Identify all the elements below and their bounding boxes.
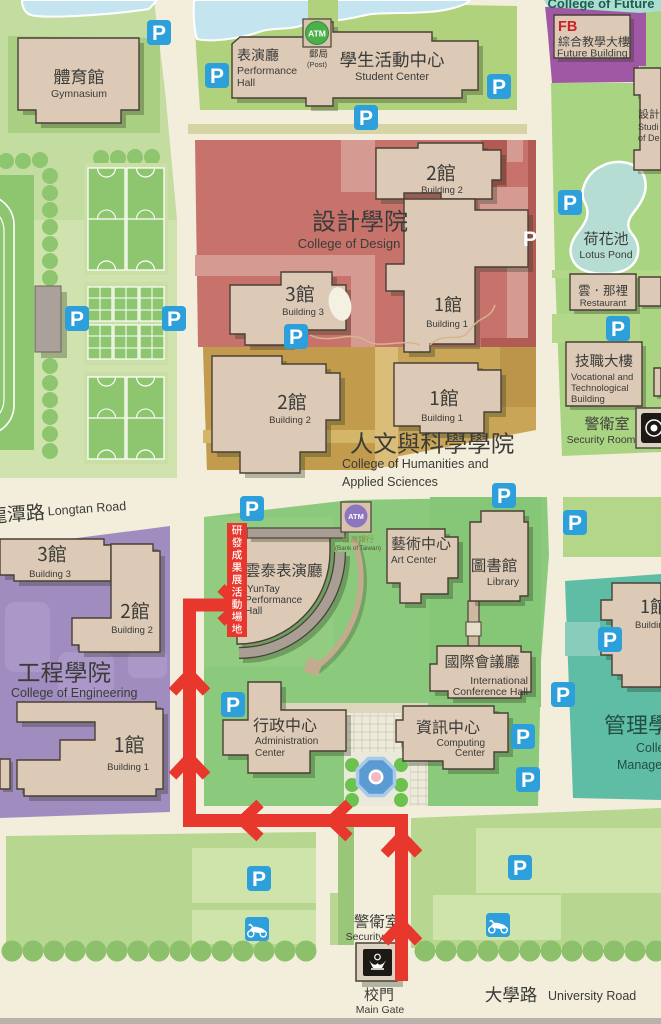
svg-text:Library: Library — [487, 576, 520, 588]
svg-text:P: P — [245, 498, 259, 521]
svg-text:Building 1: Building 1 — [107, 762, 149, 773]
svg-text:ATM: ATM — [308, 29, 326, 39]
svg-text:P: P — [167, 308, 181, 331]
svg-text:P: P — [210, 65, 224, 88]
svg-text:University Road: University Road — [548, 989, 636, 1003]
svg-text:Restaurant: Restaurant — [580, 298, 627, 309]
svg-text:P: P — [513, 857, 527, 880]
svg-text:College of Humanities and: College of Humanities and — [342, 457, 489, 471]
svg-text:Art Center: Art Center — [391, 555, 437, 566]
svg-text:Conference Hall: Conference Hall — [453, 686, 528, 698]
svg-text:Center: Center — [255, 748, 286, 759]
svg-text:FB: FB — [558, 19, 577, 35]
svg-text:Hall: Hall — [237, 77, 255, 89]
svg-text:Management: Management — [617, 758, 661, 772]
svg-text:College of Engineering: College of Engineering — [11, 686, 138, 700]
svg-text:Building 1: Building 1 — [635, 620, 661, 631]
svg-text:Performance: Performance — [237, 65, 297, 77]
svg-text:Building: Building — [571, 394, 605, 405]
svg-text:P: P — [556, 684, 570, 707]
svg-text:YunTay: YunTay — [247, 584, 280, 595]
svg-text:ATM: ATM — [348, 512, 364, 521]
svg-text:Building 2: Building 2 — [111, 625, 153, 636]
svg-text:College of Future: College of Future — [548, 0, 655, 11]
svg-text:Center: Center — [455, 748, 486, 759]
svg-text:(Post): (Post) — [307, 60, 328, 69]
svg-text:P: P — [568, 512, 582, 535]
svg-text:College of: College of — [636, 741, 661, 755]
svg-text:P: P — [252, 868, 266, 891]
svg-text:Building 3: Building 3 — [29, 569, 71, 580]
svg-text:College of Design: College of Design — [298, 236, 401, 251]
svg-text:Vocational and: Vocational and — [571, 372, 633, 383]
svg-text:of De: of De — [638, 133, 660, 143]
svg-text:P: P — [516, 726, 530, 749]
svg-text:P: P — [226, 694, 240, 717]
svg-text:Studi: Studi — [638, 122, 659, 132]
svg-text:Performance: Performance — [245, 595, 303, 606]
svg-text:P: P — [359, 107, 373, 130]
svg-text:P: P — [497, 485, 511, 508]
svg-text:Administration: Administration — [255, 736, 318, 747]
svg-text:Building 2: Building 2 — [269, 415, 311, 426]
svg-text:Main Gate: Main Gate — [356, 1004, 405, 1016]
svg-text:Building 3: Building 3 — [282, 307, 324, 318]
svg-text:P: P — [563, 192, 577, 215]
svg-text:Hall: Hall — [245, 606, 262, 617]
svg-text:P: P — [521, 769, 535, 792]
svg-text:P: P — [611, 318, 625, 341]
svg-text:Student Center: Student Center — [355, 71, 429, 83]
svg-text:P: P — [492, 76, 506, 99]
svg-text:Building 1: Building 1 — [421, 413, 463, 424]
svg-text:P: P — [523, 228, 537, 251]
svg-text:P: P — [289, 326, 303, 349]
svg-text:Future Building: Future Building — [557, 48, 628, 60]
svg-text:Building 2: Building 2 — [421, 185, 463, 196]
svg-text:Security Room: Security Room — [567, 434, 636, 446]
svg-text:(Bank of Taiwan): (Bank of Taiwan) — [335, 545, 381, 552]
svg-text:P: P — [70, 308, 84, 331]
svg-text:Technological: Technological — [571, 383, 629, 394]
svg-text:Building 1: Building 1 — [426, 319, 468, 330]
svg-text:Gymnasium: Gymnasium — [51, 88, 107, 100]
svg-text:P: P — [603, 629, 617, 652]
svg-text:P: P — [152, 22, 166, 45]
svg-text:Lotus Pond: Lotus Pond — [579, 249, 632, 261]
svg-text:Applied Sciences: Applied Sciences — [342, 475, 438, 489]
